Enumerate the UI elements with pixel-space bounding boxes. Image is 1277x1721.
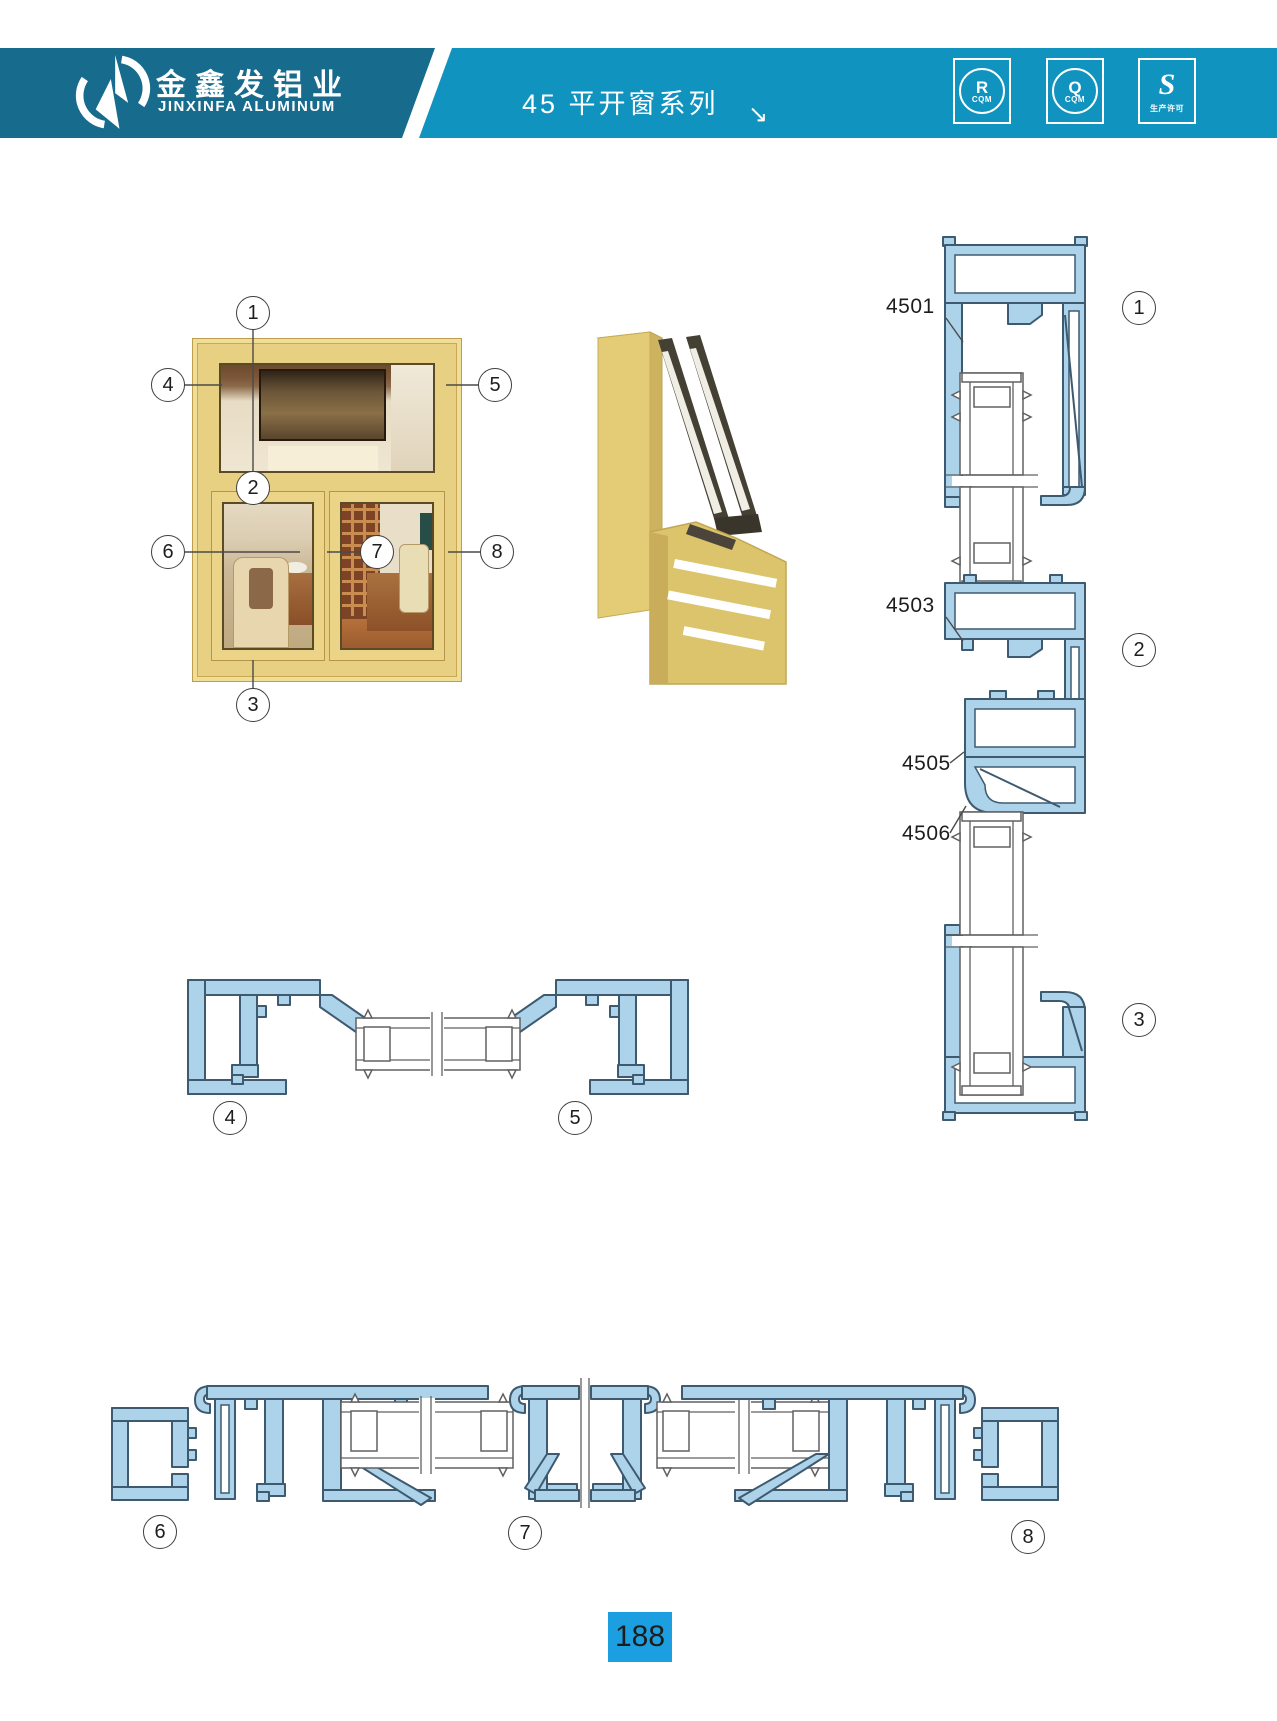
window-callout-5: 5 [478, 368, 512, 402]
badge-sub: CQM [972, 96, 992, 104]
company-logo-icon [74, 50, 152, 134]
interior-chair [233, 557, 290, 648]
interior-chair [399, 544, 430, 612]
window-illustration [192, 338, 462, 682]
interior-light-glow [268, 446, 378, 471]
chair-back-cutout [249, 568, 273, 609]
double-glazing-panes [658, 335, 762, 536]
horizontal-section-mid-drawing [160, 958, 660, 1098]
badge-sub: CQM [1065, 96, 1085, 104]
lower-glazing-unit [946, 812, 1046, 1095]
right-casement-sash [329, 491, 445, 661]
profile-label-4501: 4501 [886, 295, 935, 319]
horizontal-section-bottom-drawing [95, 1362, 1185, 1512]
badge-letter: R [976, 79, 988, 96]
profile-4506-sash-rail [965, 757, 1085, 813]
left-sash-glass-pane [222, 502, 314, 650]
interior-ceiling [391, 365, 433, 471]
profile-label-4506: 4506 [902, 822, 951, 846]
left-jamb-profile [188, 980, 368, 1094]
vertical-section-drawing [812, 235, 1162, 1120]
section-callout-7: 7 [508, 1516, 542, 1550]
section-callout-2: 2 [1122, 633, 1156, 667]
cert-badge-r-cqm: R CQM [953, 58, 1011, 124]
section-callout-4: 4 [213, 1101, 247, 1135]
profile-label-4505: 4505 [902, 752, 951, 776]
diagonal-arrow-icon: ↘ [748, 100, 768, 129]
left-frame-profile [112, 1408, 196, 1500]
window-callout-7: 7 [360, 535, 394, 569]
window-callout-8: 8 [480, 535, 514, 569]
left-casement-sash [211, 491, 325, 661]
window-callout-1: 1 [236, 296, 270, 330]
cert-badge-license: S 生产许可 [1138, 58, 1196, 124]
section-callout-5: 5 [558, 1101, 592, 1135]
left-glazing-unit [341, 1394, 513, 1476]
upper-glazing-unit [946, 373, 1046, 590]
company-name-en: JINXINFA ALUMINUM [158, 98, 336, 115]
right-frame-profile [974, 1408, 1058, 1500]
profile-4505-sash-rail [965, 691, 1085, 757]
catalog-page: 金鑫发铝业 JINXINFA ALUMINUM 45 平开窗系列 ↘ R CQM… [0, 0, 1277, 1721]
page-number: 188 [608, 1612, 672, 1662]
right-jamb-profile [508, 980, 688, 1094]
right-sash-glass-pane [340, 502, 434, 650]
section-callout-1: 1 [1122, 291, 1156, 325]
section-callout-6: 6 [143, 1515, 177, 1549]
interior-lantern [259, 369, 386, 441]
badge-sub: 生产许可 [1150, 103, 1184, 114]
window-callout-3: 3 [236, 688, 270, 722]
window-callout-2: 2 [236, 471, 270, 505]
section-callout-8: 8 [1011, 1520, 1045, 1554]
series-title: 45 平开窗系列 [522, 82, 719, 121]
mid-glazing-unit [356, 1010, 520, 1078]
transom-glass-pane [219, 363, 435, 473]
section-callout-3: 3 [1122, 1003, 1156, 1037]
mullion-left-sash [510, 1386, 579, 1501]
window-callout-4: 4 [151, 368, 185, 402]
profile-3d-render [540, 300, 790, 690]
badge-letter: S [1159, 68, 1176, 102]
header-band: 金鑫发铝业 JINXINFA ALUMINUM 45 平开窗系列 ↘ R CQM… [0, 48, 1277, 138]
profile-label-4503: 4503 [886, 594, 935, 618]
badge-letter: Q [1068, 79, 1081, 96]
cert-badge-q-cqm: Q CQM [1046, 58, 1104, 124]
window-callout-6: 6 [151, 535, 185, 569]
mullion-right-sash [591, 1386, 660, 1501]
